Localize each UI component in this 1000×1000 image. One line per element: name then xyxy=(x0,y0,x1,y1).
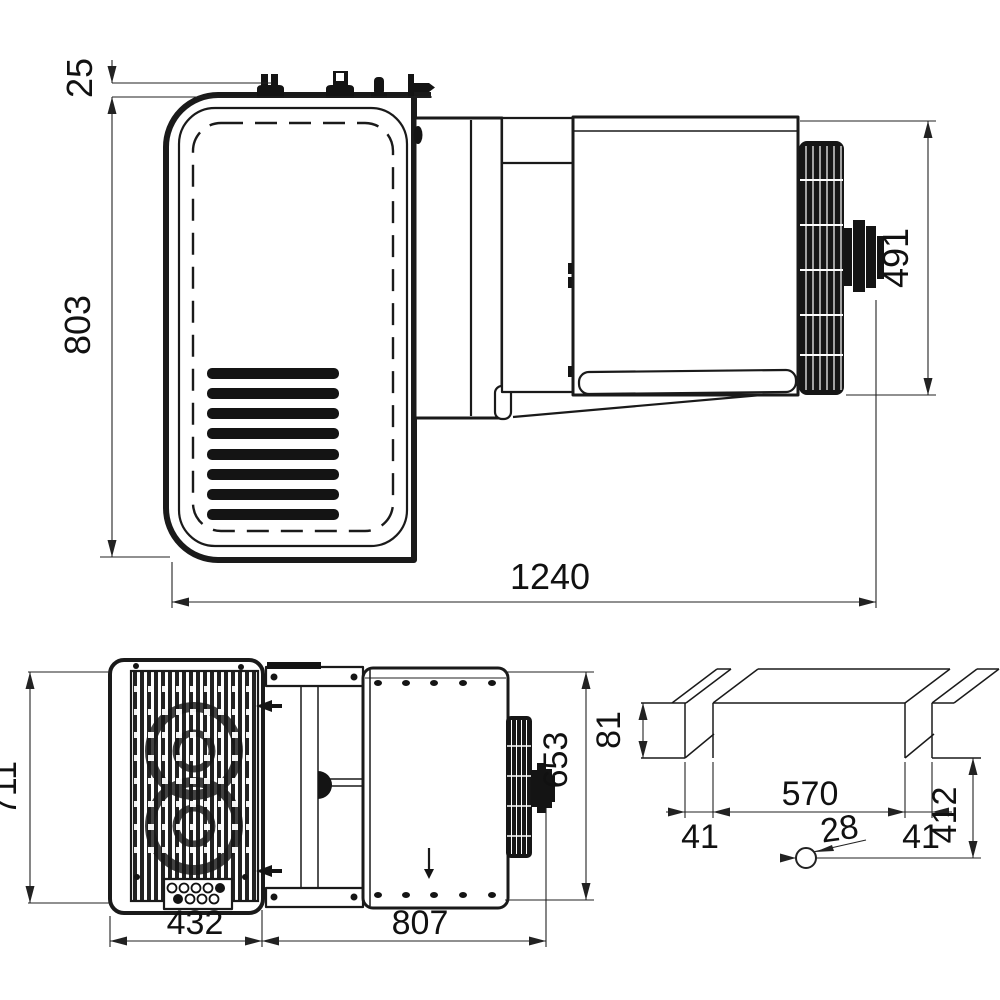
drain-hole xyxy=(796,848,816,868)
dim-label-1240: 1240 xyxy=(510,556,590,597)
dim-label-412: 412 xyxy=(926,787,964,844)
dim-label-807: 807 xyxy=(392,904,449,942)
intermediate-section xyxy=(502,118,578,392)
side-view: 653 807 xyxy=(256,662,594,947)
top-view: 25 803 1240 491 xyxy=(57,58,936,608)
dim-depth-803: 803 xyxy=(57,97,170,557)
dim-label-653: 653 xyxy=(537,732,575,789)
wall-cutout-view: 81 570 41 41 412 xyxy=(590,669,999,868)
dim-label-28: 28 xyxy=(818,808,861,851)
dim-label-711: 711 xyxy=(0,761,24,815)
housing-side xyxy=(363,668,555,908)
dim-label-25: 25 xyxy=(59,58,100,98)
refrigerant-fittings xyxy=(257,71,435,98)
dim-cutout-top-81: 81 xyxy=(590,703,648,758)
front-grille xyxy=(132,672,257,900)
dim-hole-diameter-28: 28 xyxy=(780,808,866,868)
dim-label-41-left: 41 xyxy=(681,818,719,856)
dim-cutout-width-570: 570 41 41 xyxy=(666,762,952,856)
dimension-drawing: 25 803 1240 491 xyxy=(0,0,1000,1000)
cutout-linework xyxy=(641,669,999,758)
dim-label-570: 570 xyxy=(782,775,839,813)
mounting-flange xyxy=(256,662,363,907)
pivot-knob xyxy=(318,771,332,799)
dim-label-491: 491 xyxy=(875,228,916,288)
dim-label-432: 432 xyxy=(167,904,224,942)
dim-label-803: 803 xyxy=(57,295,98,355)
dim-label-81: 81 xyxy=(590,711,628,749)
condensing-unit-housing xyxy=(573,117,884,395)
technical-drawing-page: 25 803 1240 491 xyxy=(0,0,1000,1000)
dim-front-height-711: 711 xyxy=(0,672,110,903)
front-view: 711 432 xyxy=(0,660,263,947)
